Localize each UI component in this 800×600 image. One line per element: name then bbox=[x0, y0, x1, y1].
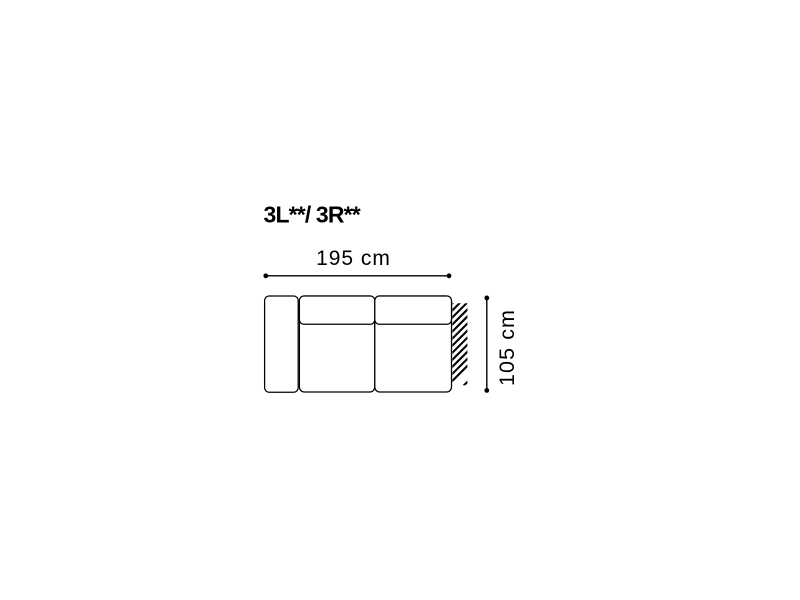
svg-text:195 cm: 195 cm bbox=[316, 247, 391, 270]
svg-text:105 cm: 105 cm bbox=[495, 309, 519, 386]
svg-text:3L**/ 3R**: 3L**/ 3R** bbox=[264, 202, 361, 228]
